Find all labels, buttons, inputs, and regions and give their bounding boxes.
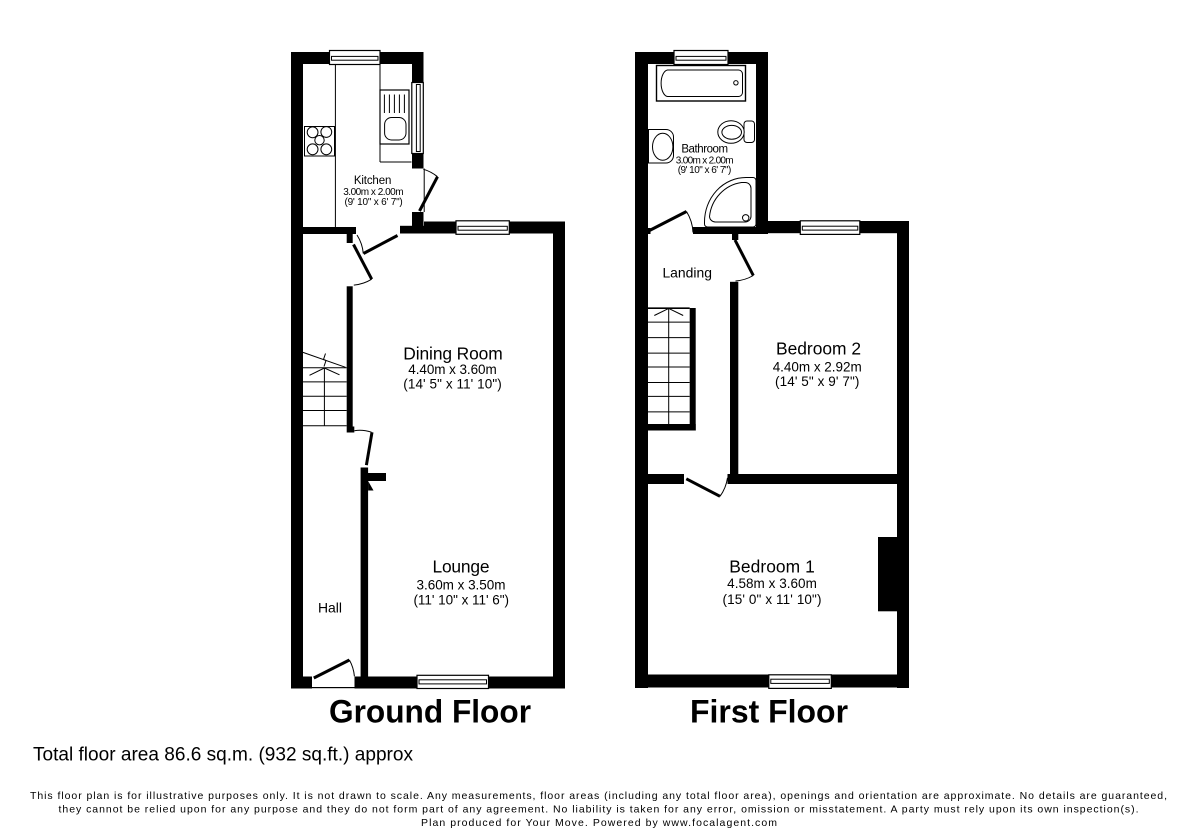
svg-text:Lounge: Lounge (433, 557, 490, 577)
svg-text:4.40m x 3.60m: 4.40m x 3.60m (408, 362, 496, 377)
svg-text:4.58m x 3.60m: 4.58m x 3.60m (727, 576, 817, 591)
svg-text:Ground Floor: Ground Floor (329, 694, 531, 730)
svg-text:Landing: Landing (662, 265, 712, 281)
svg-text:Kitchen: Kitchen (354, 175, 392, 187)
svg-text:First Floor: First Floor (690, 694, 848, 730)
svg-text:(15' 0" x 11' 10"): (15' 0" x 11' 10") (723, 592, 822, 607)
svg-text:(11' 10" x 11' 6"): (11' 10" x 11' 6") (413, 593, 509, 608)
svg-text:(9' 10" x 6' 7"): (9' 10" x 6' 7") (344, 197, 402, 208)
svg-text:This floor plan is for illustr: This floor plan is for illustrative purp… (30, 790, 1167, 802)
svg-text:4.40m x 2.92m: 4.40m x 2.92m (773, 360, 862, 375)
svg-text:Bathroom: Bathroom (681, 143, 728, 155)
svg-text:Total floor area 86.6 sq.m. (9: Total floor area 86.6 sq.m. (932 sq.ft.)… (33, 745, 413, 766)
svg-text:(14' 5" x 9' 7"): (14' 5" x 9' 7") (775, 374, 859, 389)
svg-text:they cannot be relied upon for: they cannot be relied upon for any purpo… (59, 804, 1139, 816)
svg-text:Dining Room: Dining Room (403, 344, 502, 364)
svg-text:(9' 10" x 6' 7"): (9' 10" x 6' 7") (678, 165, 732, 176)
svg-text:(14' 5" x 11' 10"): (14' 5" x 11' 10") (403, 377, 501, 392)
svg-text:Bedroom 2: Bedroom 2 (776, 339, 861, 359)
svg-text:3.60m x 3.50m: 3.60m x 3.50m (417, 578, 506, 593)
svg-text:Bedroom 1: Bedroom 1 (729, 557, 815, 577)
svg-text:Hall: Hall (318, 600, 342, 616)
